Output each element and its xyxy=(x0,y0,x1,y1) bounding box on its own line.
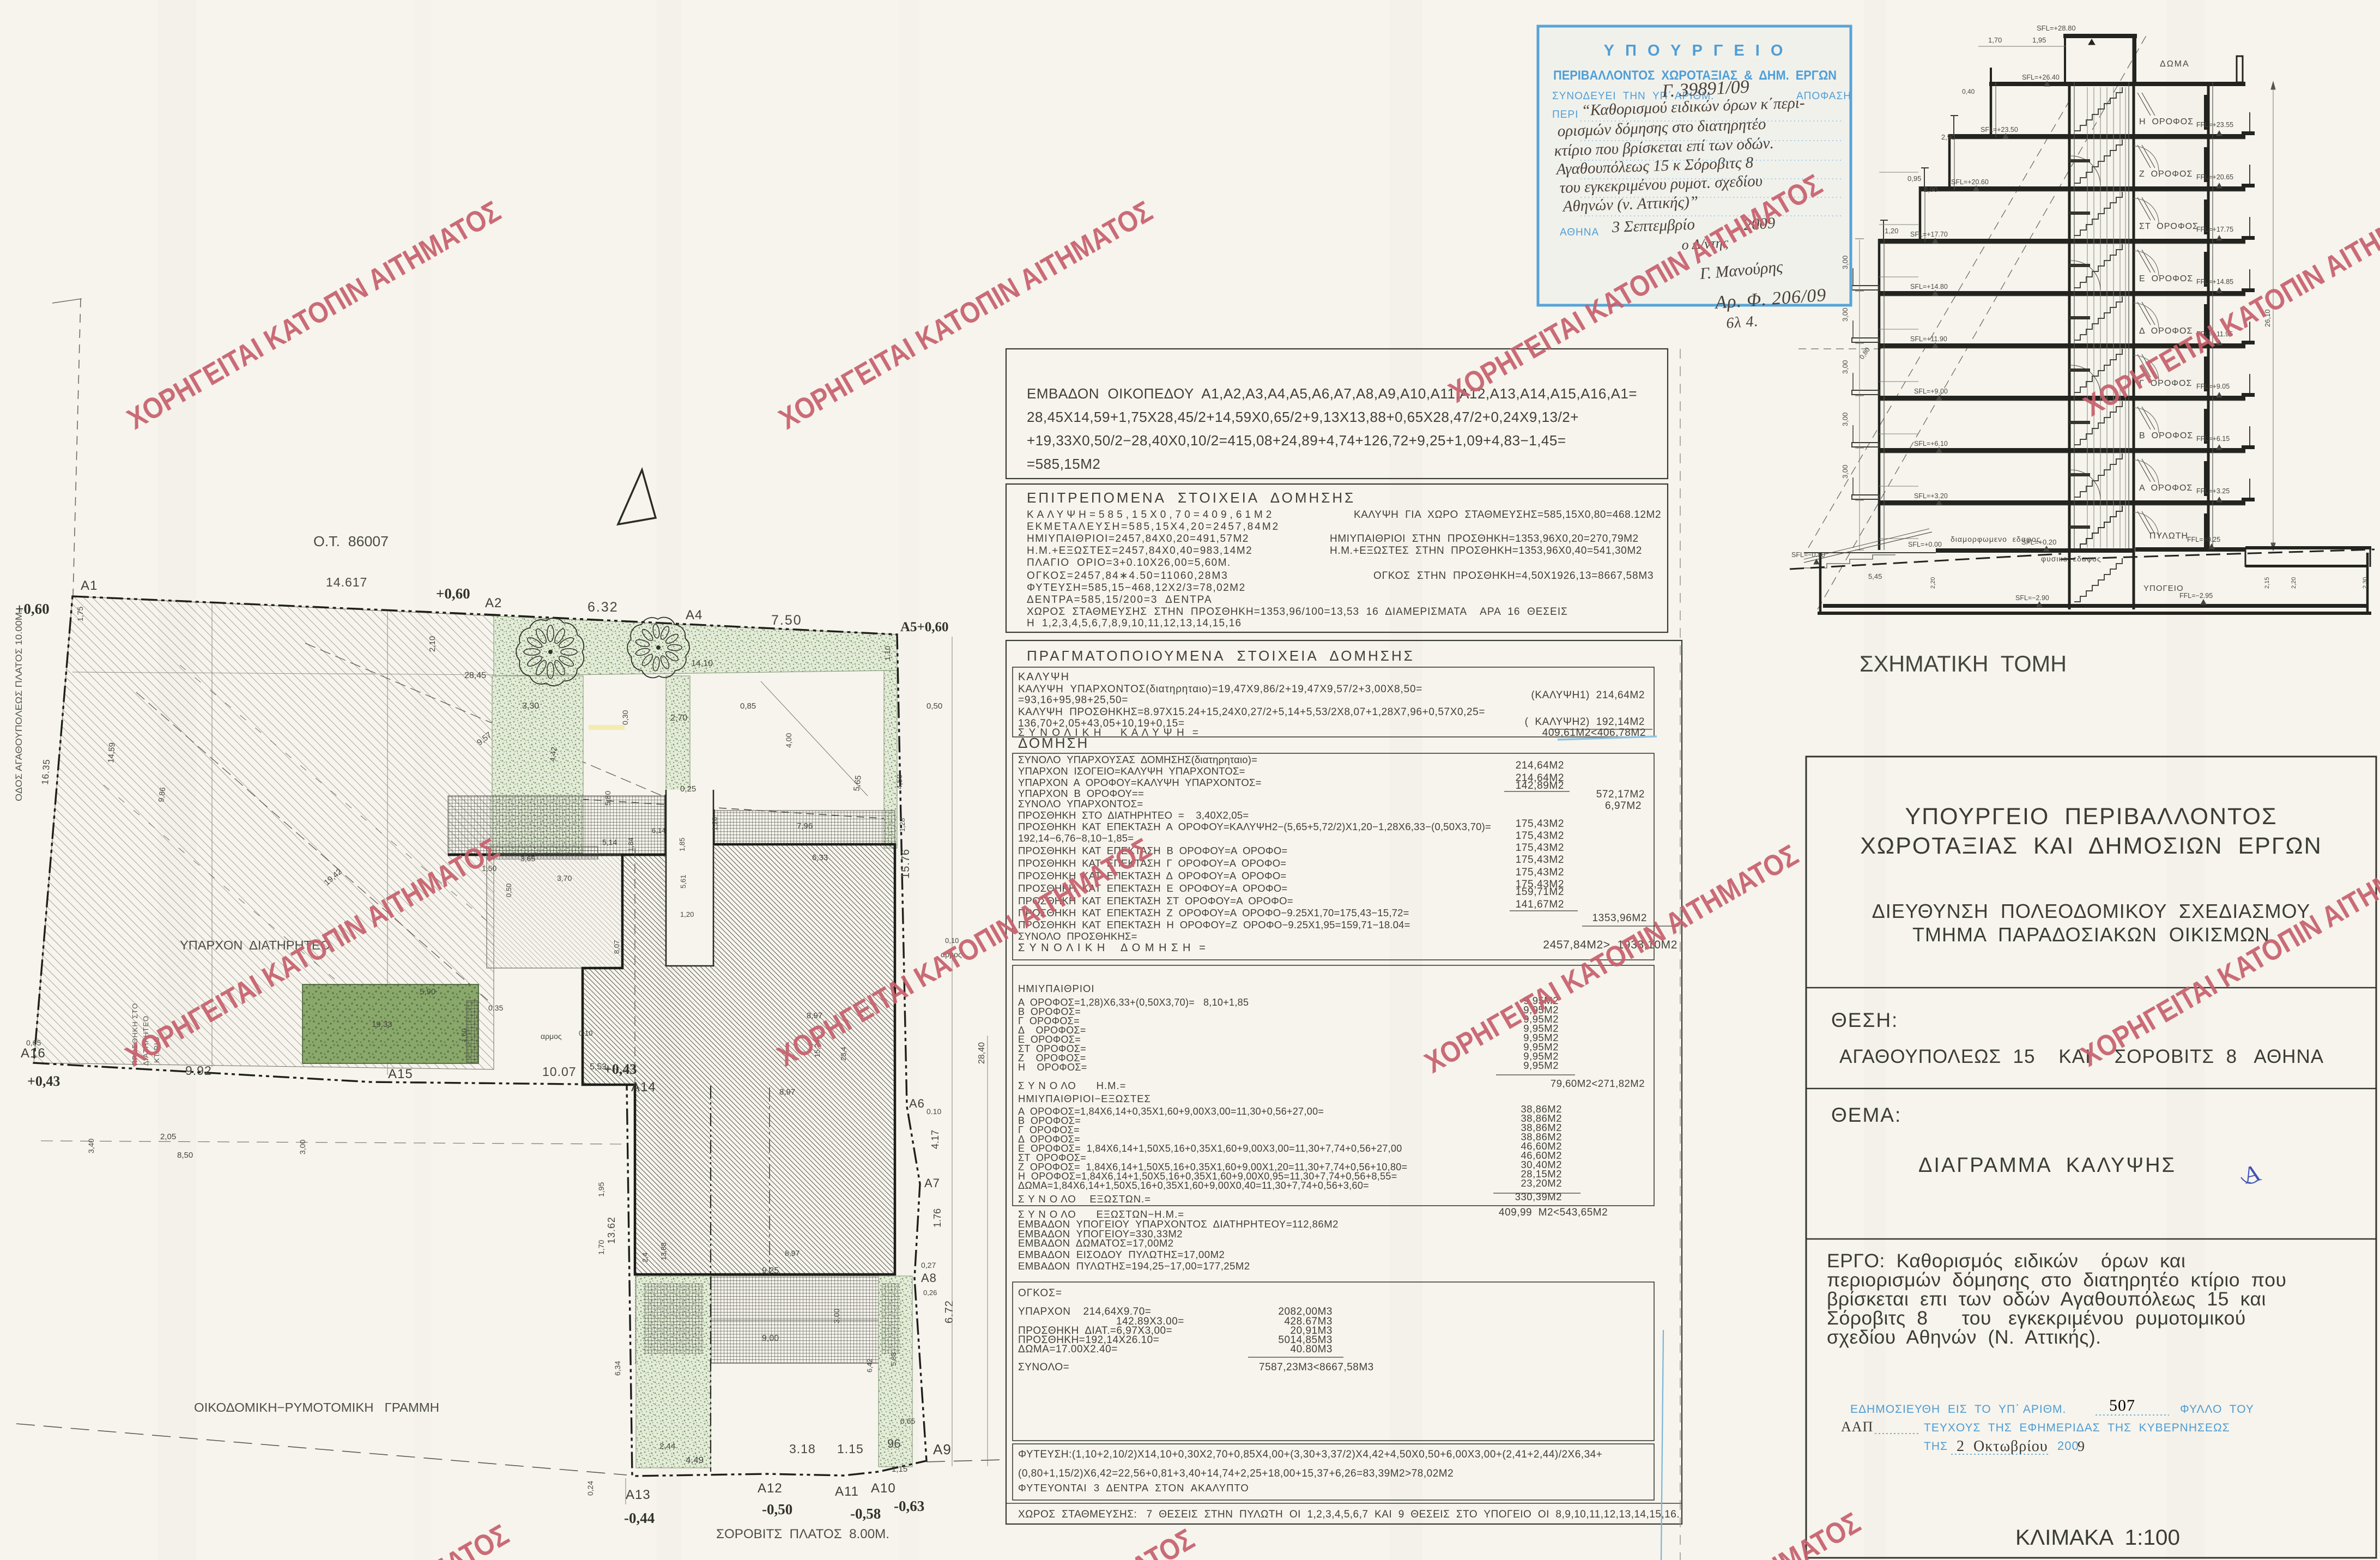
svg-text:1,75: 1,75 xyxy=(76,607,84,621)
svg-text:ΣΥΝΟΛΟ ΥΠΑΡΧΟΥΣΑΣ ΔΟΜΗΣΗΣ(δι: ΣΥΝΟΛΟ ΥΠΑΡΧΟΥΣΑΣ ΔΟΜΗΣΗΣ(διατηρηταιο)= xyxy=(1018,754,1257,765)
svg-text:1,85: 1,85 xyxy=(678,838,686,851)
svg-text:ΔΟΜΗΣΗ: ΔΟΜΗΣΗ xyxy=(1018,735,1089,751)
svg-text:ΗΜΙΥΠΑΙΘΡΙΟΙ ΣΤΗΝ ΠΡΟΣΘΗΚΗ=1: ΗΜΙΥΠΑΙΘΡΙΟΙ ΣΤΗΝ ΠΡΟΣΘΗΚΗ=1353,96Χ0,20=… xyxy=(1330,533,1639,545)
svg-text:14.617: 14.617 xyxy=(326,575,367,589)
svg-text:A15: A15 xyxy=(388,1067,413,1081)
svg-text:SFL=+9.00: SFL=+9.00 xyxy=(1914,388,1948,395)
svg-text:1,70: 1,70 xyxy=(597,1240,605,1255)
svg-text:507: 507 xyxy=(2109,1396,2135,1414)
svg-text:ΔΙΕΥΘΥΝΣΗ ΠΟΛΕΟΔΟΜΙΚΟΥ ΣΧΕΔΙ: ΔΙΕΥΘΥΝΣΗ ΠΟΛΕΟΔΟΜΙΚΟΥ ΣΧΕΔΙΑΣΜΟΥ xyxy=(1872,900,2311,922)
svg-text:28,40: 28,40 xyxy=(977,1042,986,1064)
svg-text:28,45Χ14,59+1,75Χ28,45/2+14,59: 28,45Χ14,59+1,75Χ28,45/2+14,59Χ0,65/2+9,… xyxy=(1027,409,1579,425)
svg-text:ΧΩΡΟΤΑΞΙΑΣ ΚΑΙ ΔΗΜΟΣΙΩΝ ΕΡΓ: ΧΩΡΟΤΑΞΙΑΣ ΚΑΙ ΔΗΜΟΣΙΩΝ ΕΡΓΩΝ xyxy=(1860,833,2322,859)
svg-text:FFL=+0.25: FFL=+0.25 xyxy=(2187,536,2220,543)
svg-text:7587,23Μ3<8667,58Μ3: 7587,23Μ3<8667,58Μ3 xyxy=(1259,1362,1374,1373)
svg-text:ΕΔΗΜΟΣΙΕΥΘΗ ΕΙΣ ΤΟ ΥΠ΄ ΑΡΙΘ: ΕΔΗΜΟΣΙΕΥΘΗ ΕΙΣ ΤΟ ΥΠ΄ ΑΡΙΘΜ. xyxy=(1850,1403,2066,1416)
svg-text:ΚΛΙΜΑΚΑ 1:100: ΚΛΙΜΑΚΑ 1:100 xyxy=(2015,1526,2180,1550)
svg-text:SFL=+3.20: SFL=+3.20 xyxy=(1914,492,1948,500)
svg-text:2,10: 2,10 xyxy=(428,636,437,652)
svg-text:2,90: 2,90 xyxy=(1924,185,1937,194)
svg-text:FFL=+20.65: FFL=+20.65 xyxy=(2196,173,2233,181)
svg-text:ΑΑΠ: ΑΑΠ xyxy=(1841,1419,1873,1435)
svg-text:ΕΜΒΑΔΟΝ ΔΩΜΑΤΟΣ=17,00Μ2: ΕΜΒΑΔΟΝ ΔΩΜΑΤΟΣ=17,00Μ2 xyxy=(1018,1237,1174,1249)
svg-text:0,50: 0,50 xyxy=(926,702,942,711)
svg-text:ΣΧΗΜΑΤΙΚΗ ΤΟΜΗ: ΣΧΗΜΑΤΙΚΗ ΤΟΜΗ xyxy=(1860,651,2067,676)
svg-text:0,35: 0,35 xyxy=(488,1003,503,1012)
svg-text:FFL=+23.55: FFL=+23.55 xyxy=(2196,121,2233,129)
svg-text:(0,80+1,15/2)Χ6,42=22,56+0,81+: (0,80+1,15/2)Χ6,42=22,56+0,81+3,40+14,74… xyxy=(1018,1468,1454,1479)
svg-text:19,33: 19,33 xyxy=(372,1020,392,1029)
svg-text:1,60: 1,60 xyxy=(460,1029,468,1042)
svg-text:-0,58: -0,58 xyxy=(850,1505,881,1522)
svg-text:A4: A4 xyxy=(686,608,703,622)
svg-text:2,30: 2,30 xyxy=(2362,577,2369,589)
svg-text:+0,60: +0,60 xyxy=(15,601,50,617)
svg-text:40.80Μ3: 40.80Μ3 xyxy=(1291,1344,1333,1355)
svg-text:142,89Μ2: 142,89Μ2 xyxy=(1516,780,1564,791)
svg-text:ΘΕΣΗ:: ΘΕΣΗ: xyxy=(1831,1009,1898,1031)
svg-text:ΣΟΡΟΒΙΤΣ ΠΛΑΤΟΣ 8.00Μ.: ΣΟΡΟΒΙΤΣ ΠΛΑΤΟΣ 8.00Μ. xyxy=(716,1527,889,1541)
svg-text:SFL=+17.70: SFL=+17.70 xyxy=(1910,231,1948,238)
svg-text:3.18: 3.18 xyxy=(789,1442,816,1456)
svg-text:ΤΕΥΧΟΥΣ ΤΗΣ ΕΦΗΜΕΡΙΔΑΣ ΤΗΣ: ΤΕΥΧΟΥΣ ΤΗΣ ΕΦΗΜΕΡΙΔΑΣ ΤΗΣ ΚΥΒΕΡΝΗΣΕΩΣ xyxy=(1924,1422,2230,1434)
svg-text:3,70: 3,70 xyxy=(557,874,572,882)
svg-text:5,90: 5,90 xyxy=(420,987,435,996)
svg-text:0,10: 0,10 xyxy=(579,1029,592,1037)
svg-text:Σ Υ Ν Ο Λ Ι Κ Η Δ Ο Μ Η Σ Η: Σ Υ Ν Ο Λ Ι Κ Η Δ Ο Μ Η Σ Η = xyxy=(1018,942,1206,954)
svg-text:αρμος: αρμος xyxy=(541,1032,562,1041)
svg-text:A10: A10 xyxy=(871,1481,896,1496)
svg-text:1,15: 1,15 xyxy=(892,1465,907,1474)
svg-text:ΚΑΛΥΨΗ ΓΙΑ ΧΩΡΟ ΣΤΑΘΜΕΥΣΗΣ=: ΚΑΛΥΨΗ ΓΙΑ ΧΩΡΟ ΣΤΑΘΜΕΥΣΗΣ=585,15Χ0,80=4… xyxy=(1354,509,1661,521)
svg-text:SFL=+28.80: SFL=+28.80 xyxy=(2037,24,2076,32)
svg-text:ΦΥΤΕΥΣΗ:(1,10+2,10/2)Χ14,10+0,: ΦΥΤΕΥΣΗ:(1,10+2,10/2)Χ14,10+0,30Χ2,70+0,… xyxy=(1018,1449,1602,1460)
svg-text:2,15: 2,15 xyxy=(2264,577,2270,589)
svg-text:περιορισμών δόμησης στο δια: περιορισμών δόμησης στο διατηρητέο κτίρι… xyxy=(1827,1269,2286,1291)
svg-text:SFL=+11.90: SFL=+11.90 xyxy=(1910,335,1947,343)
svg-text:141,67Μ2: 141,67Μ2 xyxy=(1516,899,1564,910)
svg-text:7,96: 7,96 xyxy=(797,821,813,831)
svg-text:1,84: 1,84 xyxy=(627,838,635,851)
svg-text:ΕΜΒΑΔΟΝ ΟΙΚΟΠΕΔΟΥ Α1,Α2,Α3,Α: ΕΜΒΑΔΟΝ ΟΙΚΟΠΕΔΟΥ Α1,Α2,Α3,Α4,Α5,Α6,Α7,Α… xyxy=(1027,385,1637,402)
svg-text:+19,33Χ0,50/2−28,40Χ0,10/2=415: +19,33Χ0,50/2−28,40Χ0,10/2=415,08+24,89+… xyxy=(1027,432,1566,449)
svg-text:ΥΠΟΓΕΙΟ: ΥΠΟΓΕΙΟ xyxy=(2143,584,2184,593)
svg-text:ΕΚΜΕΤΑΛΕΥΣΗ=585,15Χ4,20=2457,8: ΕΚΜΕΤΑΛΕΥΣΗ=585,15Χ4,20=2457,84Μ2 xyxy=(1027,521,1280,533)
svg-text:A12: A12 xyxy=(758,1481,783,1496)
svg-text:8,97: 8,97 xyxy=(779,1087,795,1097)
svg-text:4.17: 4.17 xyxy=(930,1130,941,1149)
svg-text:ΟΓΚΟΣ=: ΟΓΚΟΣ= xyxy=(1018,1287,1062,1299)
svg-text:8,07: 8,07 xyxy=(613,940,621,954)
svg-text:ΧΟΡΗΓΕΙΤΑΙ ΚΑΤΟΠΙΝ ΑΙΤΗΜΑΤΟΣ: ΧΟΡΗΓΕΙΤΑΙ ΚΑΤΟΠΙΝ ΑΙΤΗΜΑΤΟΣ xyxy=(2075,832,2380,1073)
svg-text:A13: A13 xyxy=(626,1488,651,1502)
svg-text:ΘΕΜΑ:: ΘΕΜΑ: xyxy=(1831,1104,1901,1126)
svg-text:ΟΔΟΣ ΑΓΑΘΟΥΠΟΛΕΩΣ ΠΛΑΤΟΣ 10.00: ΟΔΟΣ ΑΓΑΘΟΥΠΟΛΕΩΣ ΠΛΑΤΟΣ 10.00Μ. xyxy=(14,609,24,801)
svg-text:ΗΜΙΥΠΑΙΘΡΙΟΙ−ΕΞΩΣΤΕΣ: ΗΜΙΥΠΑΙΘΡΙΟΙ−ΕΞΩΣΤΕΣ xyxy=(1018,1093,1151,1104)
svg-text:ΠΡΟΣΘΗΚΗ ΚΑΤ ΕΠΕΚΤΑΣΗ Α ΟΡ: ΠΡΟΣΘΗΚΗ ΚΑΤ ΕΠΕΚΤΑΣΗ Α ΟΡΟΦΟΥ=ΚΑΛΥΨΗ2−(… xyxy=(1018,821,1491,832)
svg-text:9.92: 9.92 xyxy=(185,1063,212,1078)
svg-text:SFL=+14.80: SFL=+14.80 xyxy=(1910,283,1948,291)
svg-text:FFL=+9.05: FFL=+9.05 xyxy=(2196,383,2230,390)
svg-text:572,17Μ2: 572,17Μ2 xyxy=(1596,789,1645,800)
svg-text:ΕΜΒΑΔΟΝ ΠΥΛΩΤΗΣ=194,25−17,00=: ΕΜΒΑΔΟΝ ΠΥΛΩΤΗΣ=194,25−17,00=177,25Μ2 xyxy=(1018,1260,1250,1272)
svg-text:SFL=+0.20: SFL=+0.20 xyxy=(2021,538,2056,546)
svg-text:ΥΠΟΥΡΓΕΙΟ ΠΕΡΙΒΑΛΛΟΝΤΟΣ: ΥΠΟΥΡΓΕΙΟ ΠΕΡΙΒΑΛΛΟΝΤΟΣ xyxy=(1905,803,2277,830)
svg-text:2 Οκτωβρίου: 2 Οκτωβρίου xyxy=(1957,1438,2048,1455)
svg-text:σχεδίου Αθηνών (Ν. Αττικής): σχεδίου Αθηνών (Ν. Αττικής). xyxy=(1827,1326,2102,1348)
svg-text:5,88: 5,88 xyxy=(889,1352,898,1366)
svg-text:6,33: 6,33 xyxy=(812,853,828,862)
svg-text:Σόροβιτς 8 του εγκεκρι: Σόροβιτς 8 του εγκεκριμένου ρυμοτομικού xyxy=(1827,1307,2246,1329)
svg-text:Η ΟΡΟΦΟΣ=: Η ΟΡΟΦΟΣ= xyxy=(1018,1062,1087,1073)
svg-text:9,95Μ2: 9,95Μ2 xyxy=(1523,1060,1559,1071)
svg-text:Υ Π Ο Υ Ρ Γ Ε Ι Ο: Υ Π Ο Υ Ρ Γ Ε Ι Ο xyxy=(1604,42,1786,59)
svg-text:ΦΥΤΕΥΟΝΤΑΙ 3 ΔΕΝΤΡΑ ΣΤΟΝ Α: ΦΥΤΕΥΟΝΤΑΙ 3 ΔΕΝΤΡΑ ΣΤΟΝ ΑΚΑΛΥΠΤΟ xyxy=(1018,1482,1249,1494)
svg-text:4,50: 4,50 xyxy=(895,775,904,789)
svg-text:A16: A16 xyxy=(21,1046,46,1061)
svg-text:Η ΟΡΟΦΟΣ: Η ΟΡΟΦΟΣ xyxy=(2139,117,2194,126)
svg-text:-0,44: -0,44 xyxy=(624,1510,655,1526)
svg-text:ΣΥΝΟΛΟ=: ΣΥΝΟΛΟ= xyxy=(1018,1362,1069,1373)
svg-text:ΚΑΛΥΨΗ ΥΠΑΡΧΟΝΤΟΣ(διατηρηταιο: ΚΑΛΥΨΗ ΥΠΑΡΧΟΝΤΟΣ(διατηρηταιο)=19,47Χ9,8… xyxy=(1018,684,1422,695)
svg-text:Η.Μ.+ΕΞΩΣΤΕΣ ΣΤΗΝ ΠΡΟΣΘΗΚΗ=1: Η.Μ.+ΕΞΩΣΤΕΣ ΣΤΗΝ ΠΡΟΣΘΗΚΗ=1353,96Χ0,40=… xyxy=(1330,545,1642,557)
svg-text:ΕΠΙΤΡΕΠΟΜΕΝΑ ΣΤΟΙΧΕΙΑ ΔΟΜΗΣΗ: ΕΠΙΤΡΕΠΟΜΕΝΑ ΣΤΟΙΧΕΙΑ ΔΟΜΗΣΗΣ xyxy=(1027,489,1355,506)
svg-text:0,25: 0,25 xyxy=(680,784,696,794)
svg-text:9: 9 xyxy=(2078,1438,2085,1454)
svg-text:ΠΡΟΣΘΗΚΗ ΚΑΤ ΕΠΕΚΤΑΣΗ Ζ ΟΡ: ΠΡΟΣΘΗΚΗ ΚΑΤ ΕΠΕΚΤΑΣΗ Ζ ΟΡΟΦΟΥ=Α ΟΡΟΦΟ−9… xyxy=(1018,907,1409,918)
svg-text:SFL=+0.00: SFL=+0.00 xyxy=(1908,541,1942,548)
svg-text:ΔΩΜΑ: ΔΩΜΑ xyxy=(2160,59,2190,69)
svg-text:ΟΓΚΟΣ ΣΤΗΝ ΠΡΟΣΘΗΚΗ=4,50Χ192: ΟΓΚΟΣ ΣΤΗΝ ΠΡΟΣΘΗΚΗ=4,50Χ1926,13=8667,58… xyxy=(1373,570,1654,582)
svg-text:ΧΩΡΟΣ ΣΤΑΘΜΕΥΣΗΣ ΣΤΗΝ ΠΡΟΣΘ: ΧΩΡΟΣ ΣΤΑΘΜΕΥΣΗΣ ΣΤΗΝ ΠΡΟΣΘΗΚΗ=1353,96/1… xyxy=(1027,606,1568,618)
svg-text:175,43Μ2: 175,43Μ2 xyxy=(1516,830,1564,842)
svg-text:3,00: 3,00 xyxy=(1841,413,1849,426)
svg-text:3,00: 3,00 xyxy=(298,1140,307,1154)
svg-text:0,65: 0,65 xyxy=(900,1417,915,1425)
svg-text:(ΚΑΛΥΨΗ1) 214,64Μ2: (ΚΑΛΥΨΗ1) 214,64Μ2 xyxy=(1531,690,1645,701)
svg-text:A2: A2 xyxy=(485,596,502,610)
svg-text:330,39Μ2: 330,39Μ2 xyxy=(1515,1191,1562,1202)
svg-text:ΤΗΣ: ΤΗΣ xyxy=(1924,1440,1948,1453)
svg-text:0,40: 0,40 xyxy=(1962,88,1975,95)
svg-text:A14: A14 xyxy=(631,1080,656,1095)
svg-text:Η.Μ.+ΕΞΩΣΤΕΣ=2457,84Χ0,40=983,: Η.Μ.+ΕΞΩΣΤΕΣ=2457,84Χ0,40=983,14Μ2 xyxy=(1027,545,1252,557)
svg-text:3,00: 3,00 xyxy=(832,1309,841,1323)
svg-text:159,71Μ2: 159,71Μ2 xyxy=(1516,886,1564,898)
svg-text:1,20: 1,20 xyxy=(1885,227,1898,235)
svg-text:13,88: 13,88 xyxy=(659,1242,668,1260)
svg-text:28,4: 28,4 xyxy=(839,1047,847,1061)
svg-text:0,50: 0,50 xyxy=(505,884,513,897)
svg-text:βρίσκεται επι των οδών Αγα: βρίσκεται επι των οδών Αγαθουπόλεως 15 κ… xyxy=(1827,1288,2266,1310)
svg-text:ΠΡΑΓΜΑΤΟΠΟΙΟΥΜΕΝΑ ΣΤΟΙΧΕΙΑ Δ: ΠΡΑΓΜΑΤΟΠΟΙΟΥΜΕΝΑ ΣΤΟΙΧΕΙΑ ΔΟΜΗΣΗΣ xyxy=(1027,648,1415,664)
svg-text:5,53: 5,53 xyxy=(590,1062,607,1072)
svg-text:200: 200 xyxy=(2057,1439,2079,1453)
svg-text:ΠΡΟΣΘΗΚΗ ΚΑΤ ΕΠΕΚΤΑΣΗ Η ΟΡ: ΠΡΟΣΘΗΚΗ ΚΑΤ ΕΠΕΚΤΑΣΗ Η ΟΡΟΦΟΥ=Ζ ΟΡΟΦΟ−9… xyxy=(1018,919,1410,930)
svg-text:( ΚΑΛΥΨΗ2) 192,14Μ2: ( ΚΑΛΥΨΗ2) 192,14Μ2 xyxy=(1525,716,1645,728)
svg-text:2,44: 2,44 xyxy=(659,1442,675,1451)
svg-text:A5+0,60: A5+0,60 xyxy=(900,620,949,634)
svg-text:ΥΠΑΡΧΟΝ Β ΟΡΟΦΟΥ==: ΥΠΑΡΧΟΝ Β ΟΡΟΦΟΥ== xyxy=(1018,788,1144,799)
svg-text:φυσικο εδαφος: φυσικο εδαφος xyxy=(2041,554,2102,563)
svg-text:16.35: 16.35 xyxy=(40,759,52,785)
svg-text:9,00: 9,00 xyxy=(762,1334,779,1343)
svg-text:3,40: 3,40 xyxy=(87,1139,95,1153)
svg-text:6,97Μ2: 6,97Μ2 xyxy=(1605,800,1642,812)
svg-text:3,30: 3,30 xyxy=(522,702,539,711)
svg-text:6,14: 6,14 xyxy=(652,826,665,835)
svg-text:ΔΕΝΤΡΑ=585,15/200=3 ΔΕΝΤΡΑ: ΔΕΝΤΡΑ=585,15/200=3 ΔΕΝΤΡΑ xyxy=(1027,594,1213,606)
svg-text:ΕΡΓΟ: Καθορισμός ειδικών: ΕΡΓΟ: Καθορισμός ειδικών όρων και xyxy=(1827,1250,2185,1272)
svg-text:8,97: 8,97 xyxy=(785,1249,800,1257)
svg-text:SFL=−0.50: SFL=−0.50 xyxy=(1791,551,1825,559)
svg-text:175,43Μ2: 175,43Μ2 xyxy=(1516,854,1564,866)
svg-text:Σ Υ Ν Ο ΛΟ Η.Μ.=: Σ Υ Ν Ο ΛΟ Η.Μ.= xyxy=(1018,1080,1126,1091)
svg-text:6.72: 6.72 xyxy=(943,1300,955,1323)
svg-text:FFL=+17.75: FFL=+17.75 xyxy=(2196,226,2233,233)
svg-text:3,65: 3,65 xyxy=(520,854,535,863)
svg-text:6,34: 6,34 xyxy=(613,1361,622,1376)
svg-text:409,99 Μ2<543,65Μ2: 409,99 Μ2<543,65Μ2 xyxy=(1499,1207,1608,1218)
svg-text:14,10: 14,10 xyxy=(691,659,713,668)
svg-text:14,59: 14,59 xyxy=(106,742,117,764)
svg-text:=93,16+95,98+25,50=: =93,16+95,98+25,50= xyxy=(1018,694,1128,706)
svg-text:13.62: 13.62 xyxy=(606,1217,617,1244)
svg-text:0,26: 0,26 xyxy=(923,1289,937,1297)
svg-text:5,14: 5,14 xyxy=(602,838,617,846)
svg-text:192,14−6,76−8,10−1,85=: 192,14−6,76−8,10−1,85= xyxy=(1018,832,1134,844)
svg-text:9,86: 9,86 xyxy=(156,787,167,802)
svg-text:A11: A11 xyxy=(835,1484,859,1499)
svg-text:A1: A1 xyxy=(81,578,98,593)
svg-text:ΥΠΑΡΧΟΝ ΙΣΟΓΕΙΟ=ΚΑΛΥΨΗ ΥΠΑΡΧ: ΥΠΑΡΧΟΝ ΙΣΟΓΕΙΟ=ΚΑΛΥΨΗ ΥΠΑΡΧΟΝΤΟΣ= xyxy=(1018,765,1245,777)
svg-text:2,20: 2,20 xyxy=(1930,577,1936,589)
svg-text:175,43Μ2: 175,43Μ2 xyxy=(1516,867,1564,878)
svg-text:ΣΥΝΟΛΟ ΠΡΟΣΘΗΚΗΣ=: ΣΥΝΟΛΟ ΠΡΟΣΘΗΚΗΣ= xyxy=(1018,930,1137,942)
svg-text:ΕΜΒΑΔΟΝ ΕΙΣΟΔΟΥ ΠΥΛΩΤΗΣ=17,0: ΕΜΒΑΔΟΝ ΕΙΣΟΔΟΥ ΠΥΛΩΤΗΣ=17,00Μ2 xyxy=(1018,1249,1225,1260)
svg-text:SFL=+26.40: SFL=+26.40 xyxy=(2022,74,2060,81)
svg-text:96: 96 xyxy=(887,1437,900,1450)
svg-text:-0,50: -0,50 xyxy=(762,1501,792,1517)
svg-text:Σ Υ Ν Ο ΛΟ ΕΞΩΣΤΩΝ.=: Σ Υ Ν Ο ΛΟ ΕΞΩΣΤΩΝ.= xyxy=(1018,1193,1151,1205)
svg-text:79,60Μ2<271,82Μ2: 79,60Μ2<271,82Μ2 xyxy=(1551,1078,1645,1089)
svg-text:3 Σεπτεμβρίο: 3 Σεπτεμβρίο xyxy=(1611,216,1695,236)
svg-text:1,95: 1,95 xyxy=(2032,36,2046,44)
svg-text:5,45: 5,45 xyxy=(1868,572,1882,581)
svg-text:4,49: 4,49 xyxy=(686,1455,704,1465)
svg-text:0,27: 0,27 xyxy=(921,1261,936,1269)
svg-text:1.76: 1.76 xyxy=(932,1208,943,1228)
svg-text:2,90: 2,90 xyxy=(1941,133,1955,141)
svg-text:3,00: 3,00 xyxy=(1841,360,1849,374)
svg-text:ΠΕΡΙ: ΠΕΡΙ xyxy=(1552,109,1578,120)
svg-text:Β ΟΡΟΦΟΣ: Β ΟΡΟΦΟΣ xyxy=(2139,431,2193,440)
svg-text:3,00: 3,00 xyxy=(1841,308,1849,322)
svg-text:23,20Μ2: 23,20Μ2 xyxy=(1521,1177,1563,1189)
svg-text:175,43Μ2: 175,43Μ2 xyxy=(1516,818,1564,830)
svg-text:28,45: 28,45 xyxy=(464,671,486,680)
svg-text:ΠΛΑΓΙΟ ΟΡΙΟ=3+0.10Χ26,00=5,60: ΠΛΑΓΙΟ ΟΡΙΟ=3+0.10Χ26,00=5,60Μ. xyxy=(1027,557,1231,569)
svg-text:ΣΤ ΟΡΟΦΟΣ: ΣΤ ΟΡΟΦΟΣ xyxy=(2139,222,2199,231)
svg-text:ΤΜΗΜΑ ΠΑΡΑΔΟΣΙΑΚΩΝ ΟΙΚΙΣΜΩΝ: ΤΜΗΜΑ ΠΑΡΑΔΟΣΙΑΚΩΝ ΟΙΚΙΣΜΩΝ xyxy=(1912,923,2270,946)
svg-text:6.32: 6.32 xyxy=(588,600,619,615)
svg-text:0.10: 0.10 xyxy=(926,1107,941,1116)
svg-text:-0,63: -0,63 xyxy=(894,1498,924,1514)
svg-text:ΗΜΙΥΠΑΙΘΡΙΟΙ: ΗΜΙΥΠΑΙΘΡΙΟΙ xyxy=(1018,983,1095,994)
svg-text:A6: A6 xyxy=(909,1097,925,1110)
svg-text:+0,43: +0,43 xyxy=(27,1073,60,1089)
svg-text:ΚΑΛΥΨΗ ΠΡΟΣΘΗΚΗΣ=8.97Χ15.24+1: ΚΑΛΥΨΗ ΠΡΟΣΘΗΚΗΣ=8.97Χ15.24+15,24Χ0,27/2… xyxy=(1018,706,1485,718)
svg-text:ΟΓΚΟΣ=2457,84∗4.50=11060,28Μ3: ΟΓΚΟΣ=2457,84∗4.50=11060,28Μ3 xyxy=(1027,570,1228,582)
svg-text:Ε ΟΡΟΦΟΣ: Ε ΟΡΟΦΟΣ xyxy=(2139,274,2193,283)
svg-text:ΔΙΑΓΡΑΜΜΑ ΚΑΛΥΨΗΣ: ΔΙΑΓΡΑΜΜΑ ΚΑΛΥΨΗΣ xyxy=(1918,1154,2176,1177)
svg-text:+0,43: +0,43 xyxy=(604,1061,637,1077)
svg-text:214,64Μ2: 214,64Μ2 xyxy=(1516,760,1564,771)
svg-text:SFL=+20.60: SFL=+20.60 xyxy=(1951,178,1989,186)
svg-text:6λ 4.: 6λ 4. xyxy=(1725,313,1759,332)
svg-text:0,65: 0,65 xyxy=(26,1038,41,1047)
svg-text:0,95: 0,95 xyxy=(1907,174,1921,183)
svg-text:ΦΥΛΛΟ ΤΟΥ: ΦΥΛΛΟ ΤΟΥ xyxy=(2180,1403,2254,1416)
svg-text:4,00: 4,00 xyxy=(784,733,793,748)
svg-text:1,20: 1,20 xyxy=(680,910,694,918)
svg-text:ΚΑΛΥΨΗ: ΚΑΛΥΨΗ xyxy=(1018,671,1070,683)
svg-text:0,85: 0,85 xyxy=(740,702,756,711)
svg-text:ΧΩΡΟΣ ΣΤΑΘΜΕΥΣΗΣ: 7 ΘΕΣΕΙΣ: ΧΩΡΟΣ ΣΤΑΘΜΕΥΣΗΣ: 7 ΘΕΣΕΙΣ ΣΤΗΝ ΠΥΛΩΤΗ Ο… xyxy=(1018,1509,1680,1520)
svg-text:FFL=−2.95: FFL=−2.95 xyxy=(2179,592,2213,600)
svg-text:+0,60: +0,60 xyxy=(436,585,470,602)
svg-text:ΧΟΡΗΓΕΙΤΑΙ ΚΑΤΟΠΙΝ ΑΙΤΗΜΑΤΟΣ: ΧΟΡΗΓΕΙΤΑΙ ΚΑΤΟΠΙΝ ΑΙΤΗΜΑΤΟΣ xyxy=(1419,838,1804,1079)
svg-text:2,20: 2,20 xyxy=(2291,577,2297,589)
svg-text:FFL=+6.15: FFL=+6.15 xyxy=(2196,435,2230,443)
svg-text:FFL=+14.85: FFL=+14.85 xyxy=(2196,278,2233,286)
svg-text:1353,96Μ2: 1353,96Μ2 xyxy=(1592,912,1647,924)
svg-text:2,05: 2,05 xyxy=(160,1132,176,1141)
svg-text:Η 1,2,3,4,5,6,7,8,9,10,11,12,: Η 1,2,3,4,5,6,7,8,9,10,11,12,13,14,15,16 xyxy=(1027,618,1242,629)
svg-text:ΗΜΙΥΠΑΙΘΡΙΟΙ=2457,84Χ0,20=491,: ΗΜΙΥΠΑΙΘΡΙΟΙ=2457,84Χ0,20=491,57Μ2 xyxy=(1027,533,1249,545)
svg-text:1.15: 1.15 xyxy=(837,1442,864,1456)
svg-text:A9: A9 xyxy=(933,1441,952,1458)
svg-text:ΔΩΜΑ=1,84Χ6,14+1,50Χ5,16+0,35Χ: ΔΩΜΑ=1,84Χ6,14+1,50Χ5,16+0,35Χ1,60+9,00Χ… xyxy=(1018,1180,1369,1191)
svg-text:1,28: 1,28 xyxy=(898,818,906,832)
svg-text:6,42: 6,42 xyxy=(865,1359,874,1372)
svg-text:5,80: 5,80 xyxy=(603,791,612,806)
svg-text:4,42: 4,42 xyxy=(548,746,558,762)
svg-text:1,95: 1,95 xyxy=(597,1182,605,1197)
svg-text:ΚΑΛΥΨΗ=585,15Χ0,70=409,61Μ2: ΚΑΛΥΨΗ=585,15Χ0,70=409,61Μ2 xyxy=(1027,509,1275,521)
svg-text:5,61: 5,61 xyxy=(679,875,687,888)
svg-text:Α ΟΡΟΦΟΣ: Α ΟΡΟΦΟΣ xyxy=(2139,483,2193,493)
svg-text:1,10: 1,10 xyxy=(883,646,892,661)
svg-text:8,50: 8,50 xyxy=(177,1151,193,1160)
svg-text:ΠΥΛΩΤΗ: ΠΥΛΩΤΗ xyxy=(2149,531,2188,541)
svg-text:10.07: 10.07 xyxy=(542,1065,577,1079)
svg-text:Α: Α xyxy=(2240,1159,2264,1189)
svg-text:0,24: 0,24 xyxy=(586,1481,595,1496)
svg-text:ΠΡΟΣΘΗΚΗ ΣΤΟ ΔΙΑΤΗΡΗΤΕΟ =: ΠΡΟΣΘΗΚΗ ΣΤΟ ΔΙΑΤΗΡΗΤΕΟ = 3,40Χ2,05= xyxy=(1018,809,1249,821)
svg-text:9,25: 9,25 xyxy=(762,1266,779,1275)
svg-text:175,43Μ2: 175,43Μ2 xyxy=(1516,842,1564,854)
svg-text:FFL=+3.25: FFL=+3.25 xyxy=(2196,487,2230,495)
svg-text:ΥΠΑΡΧΟΝ Α ΟΡΟΦΟΥ=ΚΑΛΥΨΗ ΥΠΑ: ΥΠΑΡΧΟΝ Α ΟΡΟΦΟΥ=ΚΑΛΥΨΗ ΥΠΑΡΧΟΝΤΟΣ= xyxy=(1018,777,1262,788)
svg-text:A7: A7 xyxy=(924,1176,940,1190)
svg-text:2,4: 2,4 xyxy=(641,1253,649,1262)
svg-text:15.76: 15.76 xyxy=(900,849,912,879)
svg-text:SFL=−2.90: SFL=−2.90 xyxy=(2015,594,2049,602)
svg-text:SFL=+23.50: SFL=+23.50 xyxy=(1981,126,2018,134)
svg-text:3,00: 3,00 xyxy=(1841,465,1849,479)
svg-text:ΑΘΗΝΑ: ΑΘΗΝΑ xyxy=(1560,227,1599,238)
svg-text:2,70: 2,70 xyxy=(670,714,687,723)
svg-text:1,28: 1,28 xyxy=(711,817,719,831)
svg-text:ΦΥΤΕΥΣΗ=585,15−468,12Χ2/3=78,0: ΦΥΤΕΥΣΗ=585,15−468,12Χ2/3=78,02Μ2 xyxy=(1027,582,1246,594)
svg-text:0,30: 0,30 xyxy=(621,710,629,725)
svg-text:Ζ ΟΡΟΦΟΣ: Ζ ΟΡΟΦΟΣ xyxy=(2139,170,2193,179)
svg-text:1,70: 1,70 xyxy=(1988,36,2002,44)
svg-text:ΔΩΜΑ=17.00Χ2.40=: ΔΩΜΑ=17.00Χ2.40= xyxy=(1018,1344,1118,1355)
svg-text:ΣΥΝΟΛΟ ΥΠΑΡΧΟΝΤΟΣ=: ΣΥΝΟΛΟ ΥΠΑΡΧΟΝΤΟΣ= xyxy=(1018,798,1143,809)
svg-text:A8: A8 xyxy=(921,1271,937,1285)
svg-text:Ο.Τ. 86007: Ο.Τ. 86007 xyxy=(313,533,389,549)
svg-text:7.50: 7.50 xyxy=(771,613,802,628)
svg-text:ΟΙΚΟΔΟΜΙΚΗ−ΡΥΜΟΤΟΜΙΚΗ ΓΡΑΜΜΗ: ΟΙΚΟΔΟΜΙΚΗ−ΡΥΜΟΤΟΜΙΚΗ ΓΡΑΜΜΗ xyxy=(194,1400,439,1414)
svg-text:=585,15Μ2: =585,15Μ2 xyxy=(1027,456,1100,472)
svg-text:SFL=+6.10: SFL=+6.10 xyxy=(1914,440,1948,448)
